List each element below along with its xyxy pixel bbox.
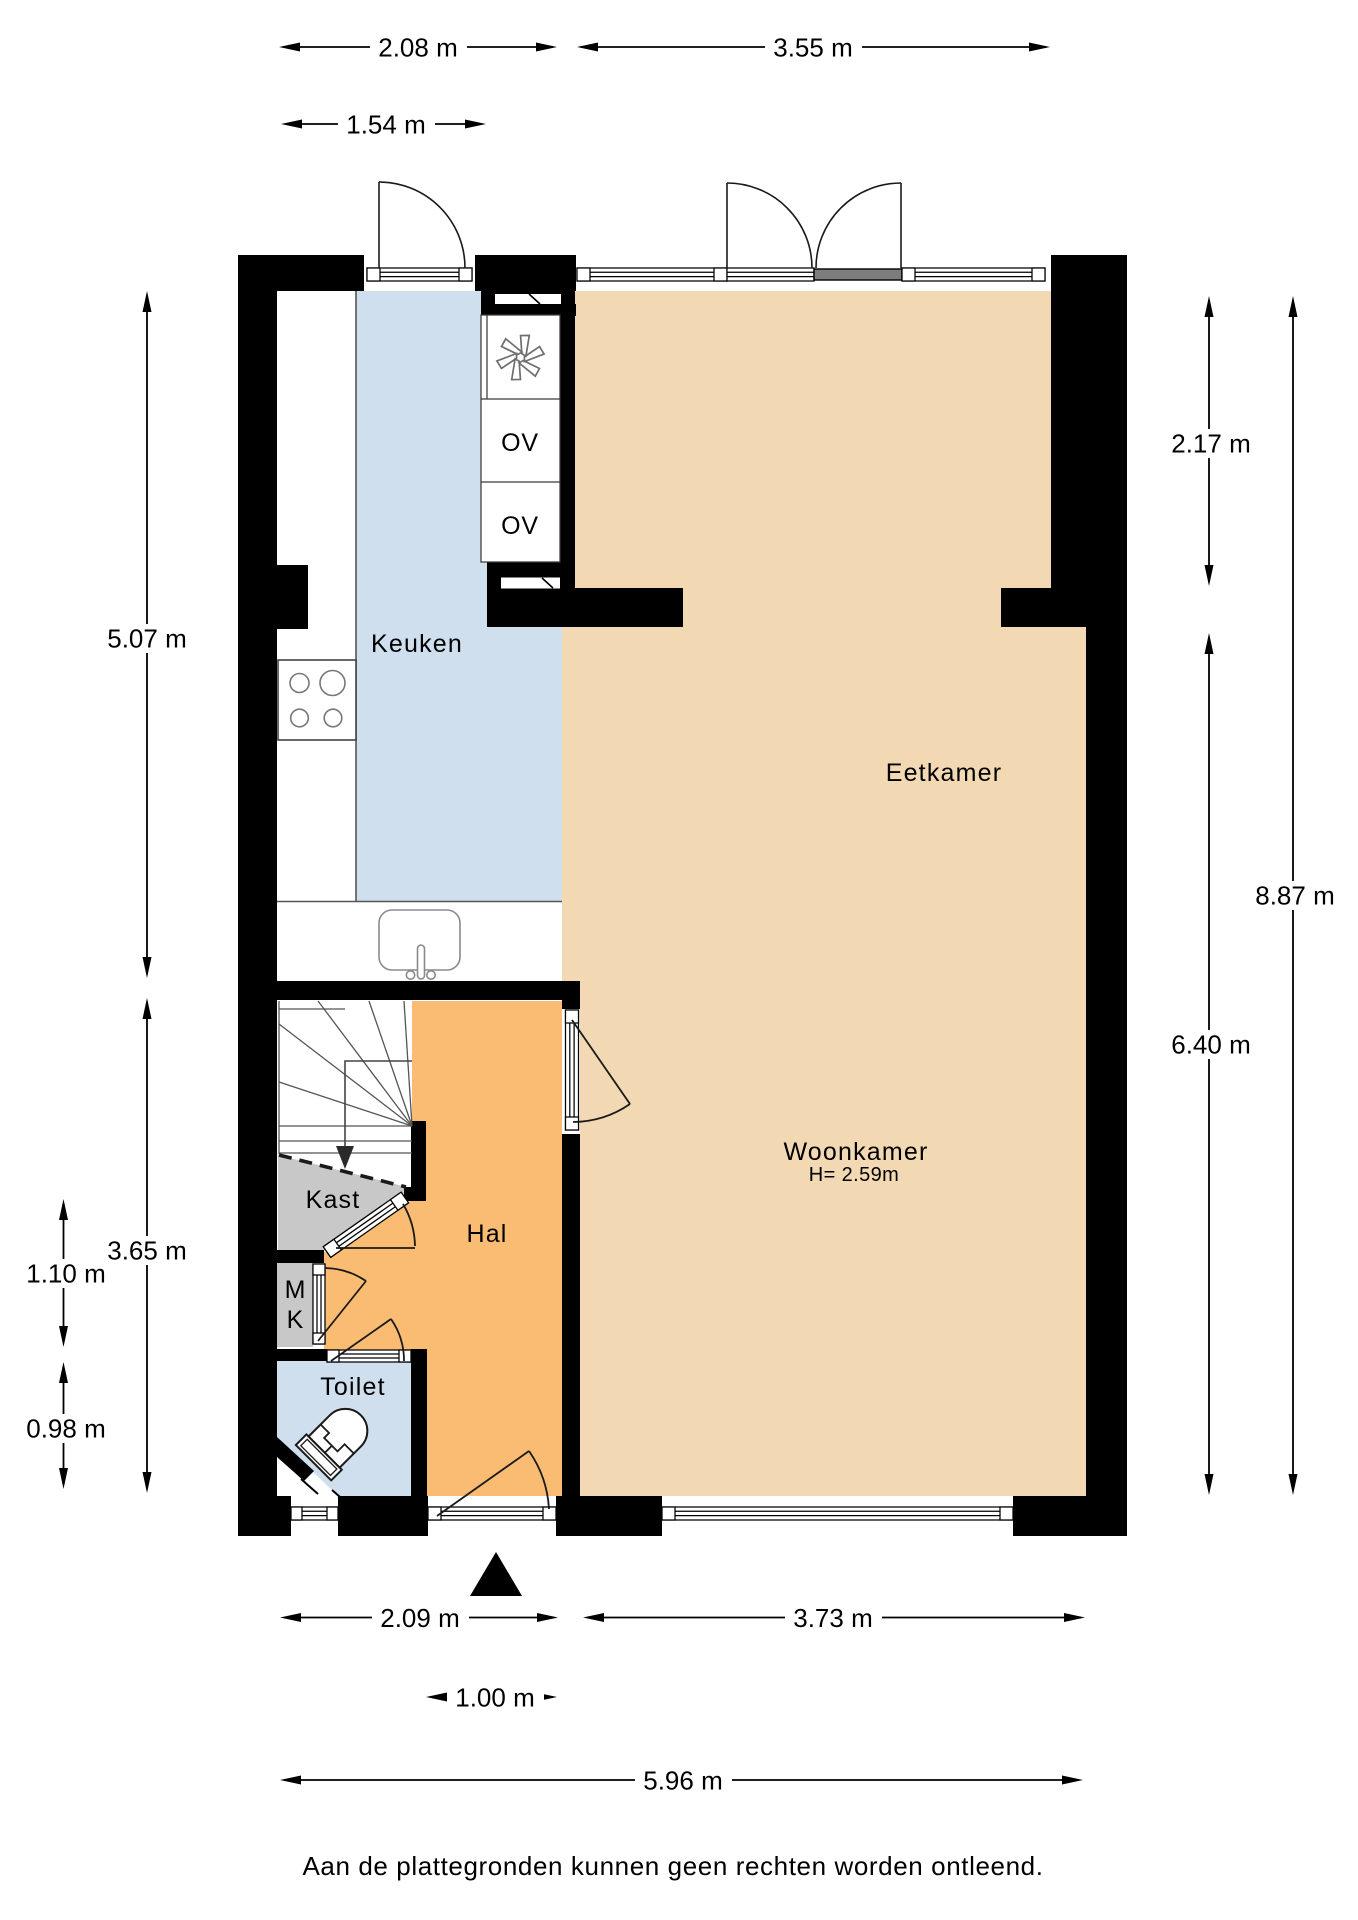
svg-text:Woonkamer: Woonkamer: [783, 1138, 928, 1166]
svg-text:M: M: [285, 1276, 306, 1304]
svg-text:Keuken: Keuken: [371, 630, 463, 658]
svg-text:2.08 m: 2.08 m: [378, 33, 458, 63]
svg-text:5.96 m: 5.96 m: [643, 1766, 723, 1796]
svg-text:Kast: Kast: [306, 1186, 361, 1214]
svg-text:3.65 m: 3.65 m: [107, 1236, 187, 1266]
svg-text:OV: OV: [501, 512, 539, 540]
svg-text:1.10 m: 1.10 m: [26, 1259, 106, 1289]
svg-text:H= 2.59m: H= 2.59m: [809, 1164, 899, 1186]
svg-text:3.55 m: 3.55 m: [773, 33, 853, 63]
svg-text:OV: OV: [501, 429, 539, 457]
svg-text:Toilet: Toilet: [320, 1373, 386, 1401]
svg-text:Eetkamer: Eetkamer: [886, 759, 1003, 787]
svg-text:0.98 m: 0.98 m: [26, 1414, 106, 1444]
svg-text:1.54 m: 1.54 m: [346, 110, 426, 140]
svg-text:5.07 m: 5.07 m: [107, 624, 187, 654]
svg-text:Hal: Hal: [466, 1220, 507, 1248]
svg-text:Aan de plattegronden kunnen ge: Aan de plattegronden kunnen geen rechten…: [302, 1851, 1043, 1881]
svg-text:8.87 m: 8.87 m: [1255, 881, 1335, 911]
svg-text:3.73 m: 3.73 m: [793, 1603, 873, 1633]
svg-text:2.17 m: 2.17 m: [1171, 429, 1251, 459]
svg-text:1.00 m: 1.00 m: [455, 1683, 535, 1713]
svg-text:6.40 m: 6.40 m: [1171, 1030, 1251, 1060]
svg-text:2.09 m: 2.09 m: [380, 1603, 460, 1633]
svg-text:K: K: [287, 1306, 304, 1334]
